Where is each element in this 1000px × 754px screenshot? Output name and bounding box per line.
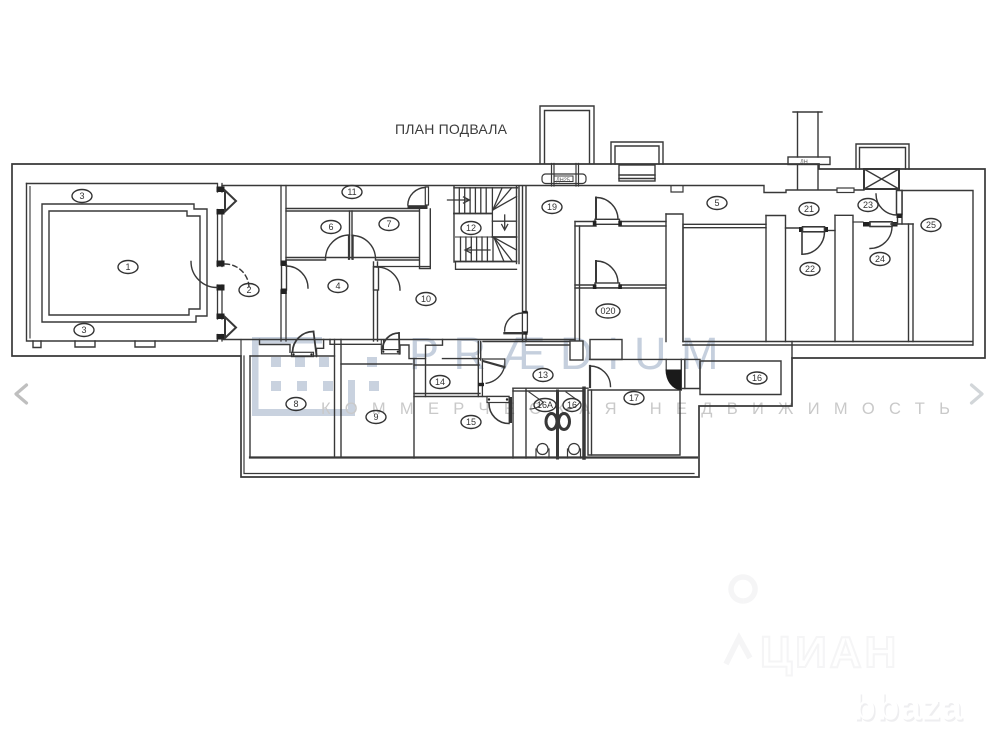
svg-text:6: 6: [328, 222, 333, 232]
svg-text:17: 17: [629, 393, 639, 403]
svg-text:24: 24: [875, 254, 885, 264]
svg-text:16А: 16А: [537, 400, 553, 410]
svg-text:21: 21: [804, 204, 814, 214]
svg-text:ПЛАН ПОДВАЛА: ПЛАН ПОДВАЛА: [395, 121, 508, 137]
svg-text:19: 19: [547, 202, 557, 212]
svg-text:ДН: ДН: [800, 160, 808, 166]
svg-text:22: 22: [805, 264, 815, 274]
svg-text:ЦИАН: ЦИАН: [760, 628, 899, 677]
svg-text:ДН25: ДН25: [556, 178, 570, 184]
svg-text:4: 4: [335, 281, 340, 291]
svg-text:23: 23: [863, 200, 873, 210]
svg-text:11: 11: [347, 187, 356, 197]
svg-text:2: 2: [246, 285, 251, 295]
svg-text:7: 7: [386, 219, 391, 229]
svg-text:3: 3: [79, 191, 84, 201]
svg-text:16: 16: [752, 373, 762, 383]
svg-text:10: 10: [421, 294, 431, 304]
svg-text:020: 020: [600, 306, 615, 316]
svg-text:13: 13: [538, 370, 548, 380]
svg-text:3: 3: [81, 325, 86, 335]
svg-text:8: 8: [293, 399, 298, 409]
svg-text:14: 14: [435, 377, 445, 387]
svg-text:5: 5: [714, 198, 719, 208]
svg-text:25: 25: [926, 220, 936, 230]
svg-text:15: 15: [466, 417, 476, 427]
svg-text:12: 12: [466, 223, 476, 233]
svg-text:1: 1: [125, 262, 130, 272]
svg-text:КОММЕРЧЕСКАЯ НЕДВИЖИМОСТЬ: КОММЕРЧЕСКАЯ НЕДВИЖИМОСТЬ: [321, 400, 964, 418]
svg-text:9: 9: [373, 412, 378, 422]
svg-text:16: 16: [567, 400, 577, 410]
svg-text:bbaza: bbaza: [853, 687, 963, 728]
